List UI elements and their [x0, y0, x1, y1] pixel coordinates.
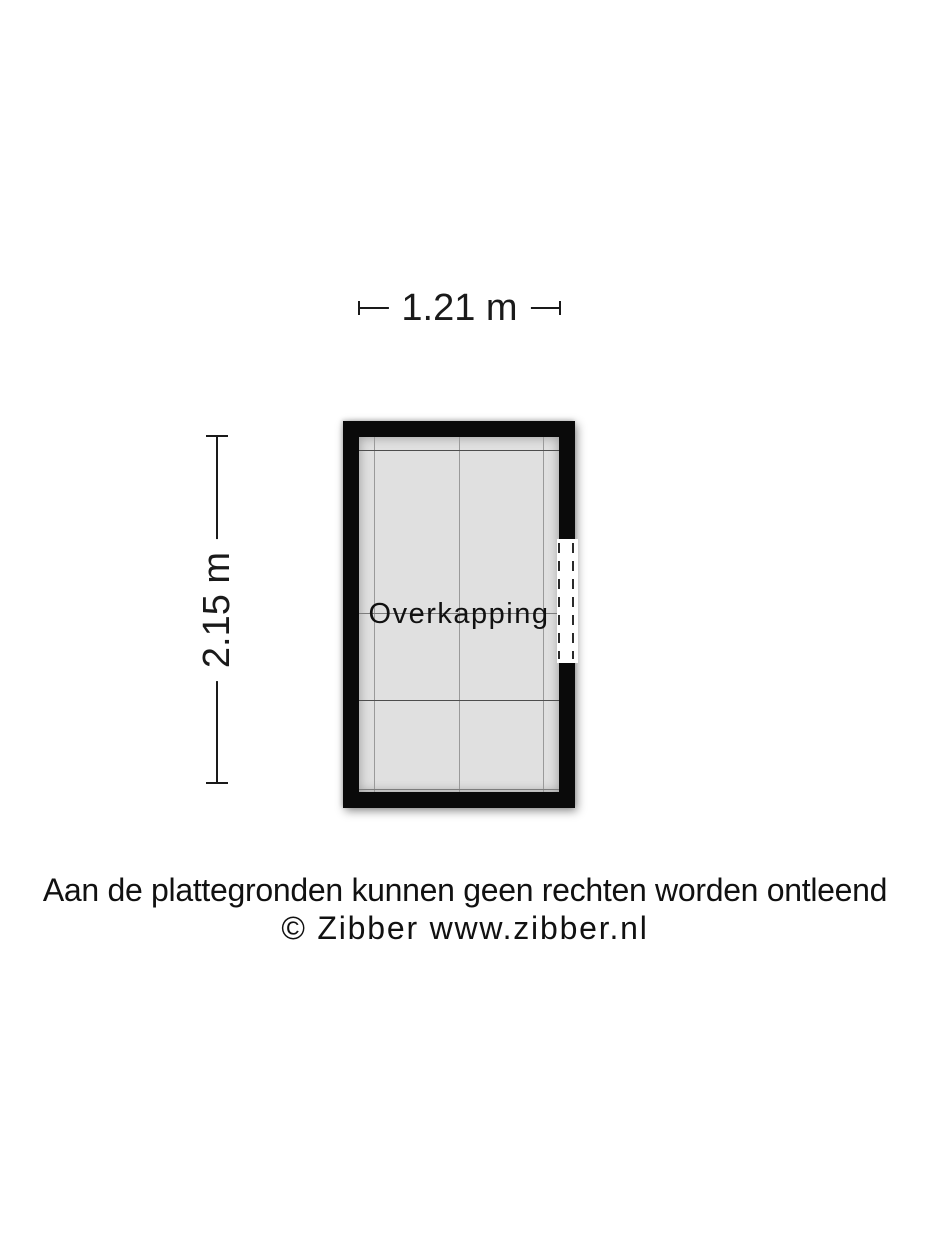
window-dash-right: [572, 543, 574, 659]
window-dash-left: [558, 543, 560, 659]
disclaimer-text: Aan de plattegronden kunnen geen rechten…: [0, 871, 930, 909]
dimension-width-tick-left: [358, 301, 360, 315]
dimension-height-tick-top: [206, 435, 228, 437]
copyright-text: © Zibber www.zibber.nl: [0, 909, 930, 947]
dimension-height-tick-bottom: [206, 782, 228, 784]
dimension-width-label: 1.21 m: [388, 287, 530, 329]
room-label: Overkapping: [359, 437, 559, 792]
dimension-height: 2.15 m: [206, 435, 228, 784]
dimension-width: 1.21 m: [358, 300, 561, 316]
room-floor: Overkapping: [359, 437, 559, 792]
dimension-width-tick-right: [559, 301, 561, 315]
dimension-height-label: 2.15 m: [196, 538, 238, 680]
footer: Aan de plattegronden kunnen geen rechten…: [0, 871, 930, 947]
wall-opening-window: [557, 539, 578, 663]
floorplan-room-outline: Overkapping: [343, 421, 575, 808]
floorplan-page: 1.21 m 2.15 m Overkapping Aan de platteg…: [0, 0, 930, 1240]
